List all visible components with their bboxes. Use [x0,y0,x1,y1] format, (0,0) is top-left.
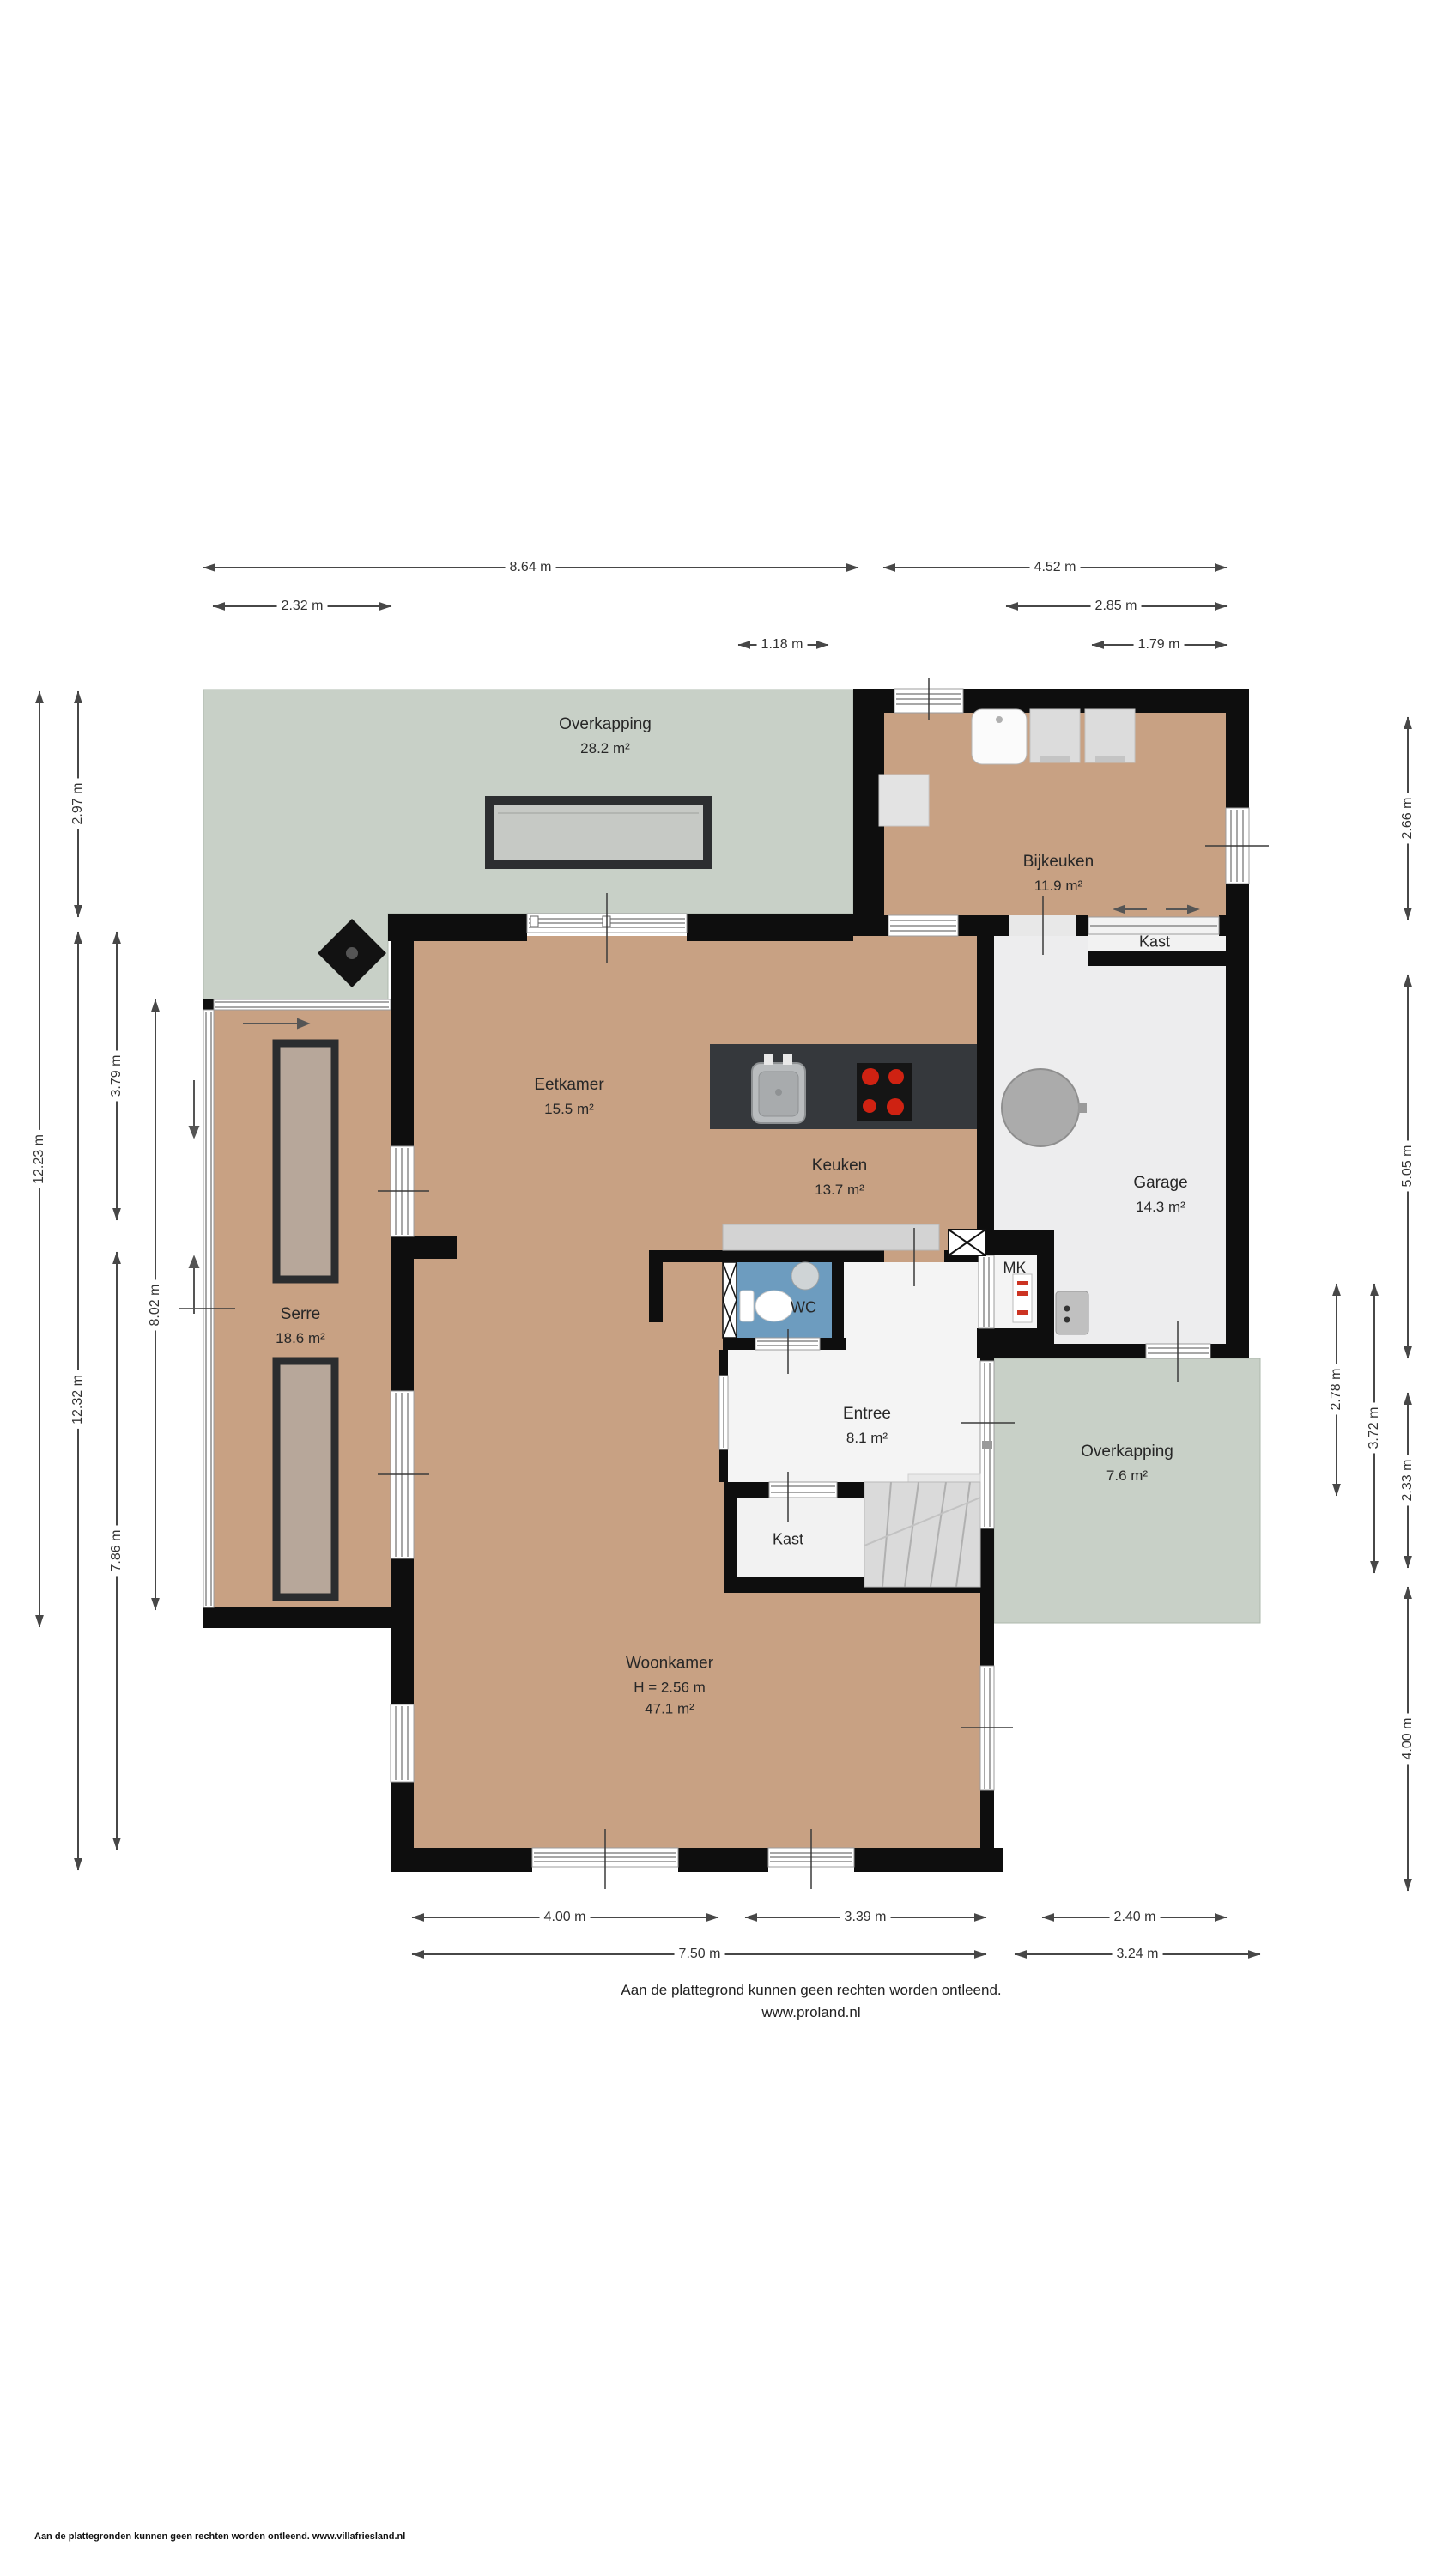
dim-left-5: 7.86 m [109,1526,124,1577]
room-label-eetkamer: Eetkamer 15.5 m² [534,1073,603,1120]
dim-top-4: 2.85 m [1091,598,1142,614]
disclaimer-text: Aan de plattegrond kunnen geen rechten w… [621,1982,1001,1999]
page-footer-text: Aan de plattegronden kunnen geen rechten… [34,2531,405,2542]
dim-top-6: 1.79 m [1134,637,1185,653]
meter-panel-icon [1013,1274,1032,1322]
dim-right-4: 4.00 m [1400,1714,1416,1765]
dim-right-2: 5.05 m [1400,1141,1416,1192]
toilet-icon [740,1291,793,1321]
room-label-entree: Entree 8.1 m² [843,1402,891,1449]
cabinet-icon [879,775,929,826]
dim-bottom-4: 7.50 m [675,1947,725,1962]
room-label-overkapping-right: Overkapping 7.6 m² [1081,1440,1173,1486]
dim-bottom-5: 3.24 m [1113,1947,1163,1962]
dim-left-1: 12.23 m [32,1130,47,1188]
room-label-serre: Serre 18.6 m² [276,1303,325,1349]
washbasin-icon [791,1262,819,1290]
boiler-icon [1056,1291,1088,1334]
dim-left-2: 2.97 m [70,779,86,829]
dim-left-3: 12.32 m [70,1370,86,1429]
round-table-icon [1002,1069,1079,1146]
room-label-kast-entree: Kast [773,1528,803,1552]
room-label-kast-garage: Kast [1139,931,1170,954]
room-label-mk: MK [1003,1257,1027,1280]
room-label-keuken: Keuken 13.7 m² [812,1154,867,1200]
dim-left-6: 8.02 m [148,1280,163,1331]
dim-right-6: 3.72 m [1367,1403,1382,1454]
dim-left-4: 3.79 m [109,1051,124,1102]
dim-top-3: 2.32 m [277,598,328,614]
dim-right-1: 2.66 m [1400,793,1416,844]
room-label-garage: Garage 14.3 m² [1133,1171,1187,1218]
dim-bottom-1: 4.00 m [540,1910,591,1925]
website-text: www.proland.nl [761,2004,860,2021]
kitchen-counter [723,1224,939,1250]
room-label-overkapping-top: Overkapping 28.2 m² [559,713,652,759]
dim-top-2: 4.52 m [1030,560,1081,575]
washer-icon [1030,709,1080,762]
room-label-bijkeuken: Bijkeuken 11.9 m² [1023,850,1094,896]
dim-top-5: 1.18 m [757,637,808,653]
dryer-icon [1085,709,1135,762]
dim-top-1: 8.64 m [506,560,556,575]
floorplan-page: Overkapping 28.2 m² Bijkeuken 11.9 m² Ka… [0,0,1449,2576]
stairs-icon [864,1474,980,1587]
dim-bottom-3: 2.40 m [1110,1910,1161,1925]
dim-right-3: 2.33 m [1400,1455,1416,1506]
room-label-wc: WC [791,1297,816,1320]
sink-icon [752,1054,805,1123]
room-label-woonkamer: Woonkamer H = 2.56 m 47.1 m² [626,1651,713,1720]
dim-right-5: 2.78 m [1329,1364,1344,1415]
dim-bottom-2: 3.39 m [840,1910,891,1925]
floorplan-drawing [0,0,1449,2576]
stove-icon [857,1063,912,1121]
kitchen-island-icon [710,1044,977,1129]
pergola-skylight-icon [489,800,707,865]
